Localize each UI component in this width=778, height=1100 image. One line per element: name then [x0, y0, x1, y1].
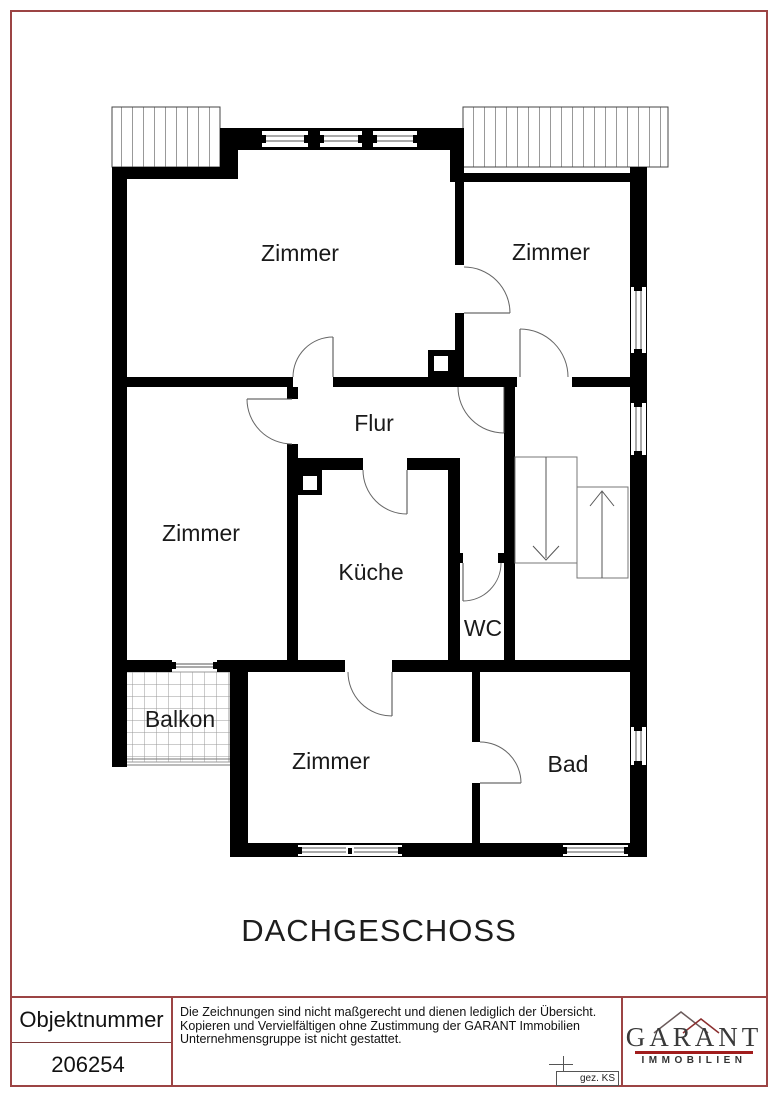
wall-kueche-north-left [287, 458, 363, 470]
floor-title: DACHGESCHOSS [179, 913, 579, 949]
chimney-upper [428, 350, 460, 377]
disclaimer-text: Die Zeichnungen sind nicht maßgerecht un… [180, 1006, 612, 1047]
wall-top-right-room-north [463, 173, 630, 182]
window-right-2 [631, 403, 646, 455]
room-label-wc: WC [464, 615, 502, 641]
window-south-zimmer [298, 845, 402, 856]
window-top-1 [262, 131, 308, 147]
wall-kueche-east [448, 470, 460, 667]
wall-zimmer-bad-lower [472, 783, 480, 843]
wall-under-left-dormer [112, 167, 238, 179]
disclaimer-line-3: Unternehmensgruppe ist nicht gestattet. [180, 1033, 612, 1047]
wall-bottom-room-west [230, 660, 248, 857]
logo-name: GARANT [621, 1022, 767, 1053]
door-bad [480, 742, 521, 783]
wall-main-horizontal-2 [333, 377, 517, 387]
disclaimer-line-1: Die Zeichnungen sind nicht maßgerecht un… [180, 1006, 612, 1020]
window-south-bad [563, 845, 628, 856]
wall-wc-north-right [498, 553, 515, 563]
windows-top [262, 131, 417, 147]
wall-connector-left [220, 128, 238, 179]
room-label-balkon: Balkon [145, 706, 215, 732]
room-label-zimmer-left: Zimmer [162, 520, 240, 546]
door-kueche [363, 470, 407, 514]
wall-main-horizontal-1 [120, 377, 293, 387]
dormer-top-left [112, 107, 220, 167]
wall-connector-right [450, 128, 464, 182]
door-between-top-rooms [464, 267, 510, 313]
room-label-zimmer-top-right: Zimmer [512, 239, 590, 265]
wall-kueche-north-right [407, 458, 460, 470]
drawn-by-tick-horizontal [549, 1064, 573, 1065]
garant-logo: GARANT IMMOBILIEN [621, 1005, 767, 1085]
wall-south-band-1 [112, 660, 172, 672]
footer-top-line [10, 996, 766, 998]
wall-flur-west-upper [287, 387, 298, 399]
door-zimmer-top-right [520, 329, 568, 377]
wall-zimmer-bad-upper [472, 672, 480, 742]
object-number-divider [12, 1042, 171, 1043]
disclaimer-line-2: Kopieren und Vervielfältigen ohne Zustim… [180, 1020, 612, 1034]
door-zimmer-left [247, 399, 292, 444]
window-right-1 [631, 287, 646, 353]
logo-rule [635, 1051, 753, 1054]
window-top-3 [373, 131, 417, 147]
window-right-3 [631, 727, 646, 765]
wall-south-band-3 [392, 660, 647, 672]
page: Zimmer Zimmer Zimmer Flur Küche WC Balko… [0, 0, 778, 1100]
door-wc [463, 563, 501, 601]
room-label-flur: Flur [354, 410, 394, 436]
logo-subtitle: IMMOBILIEN [621, 1055, 767, 1066]
drawn-by-box: gez. KS [556, 1071, 619, 1086]
wall-main-horizontal-3 [572, 377, 630, 387]
wall-corridor [504, 387, 515, 667]
chimney-kitchen [297, 470, 322, 495]
wall-left-outer [112, 167, 127, 767]
wall-divider-upper [455, 182, 464, 265]
staircase [515, 457, 628, 578]
wall-flur-west-lower [287, 444, 298, 667]
door-zimmer-bottom [348, 672, 392, 716]
object-number-label: Objektnummer [12, 1007, 171, 1033]
footer-vline-1 [171, 996, 173, 1087]
door-hallway [458, 387, 504, 433]
window-balcony [172, 661, 217, 671]
door-zimmer-top-left [293, 337, 333, 377]
window-top-2 [320, 131, 362, 147]
object-number-value: 206254 [12, 1052, 164, 1078]
room-label-zimmer-top-left: Zimmer [261, 240, 339, 266]
room-label-zimmer-bottom: Zimmer [292, 748, 370, 774]
room-label-kueche: Küche [338, 559, 403, 585]
dormer-top-right [463, 107, 668, 167]
wall-wc-north-left [448, 553, 463, 563]
room-label-bad: Bad [548, 751, 589, 777]
